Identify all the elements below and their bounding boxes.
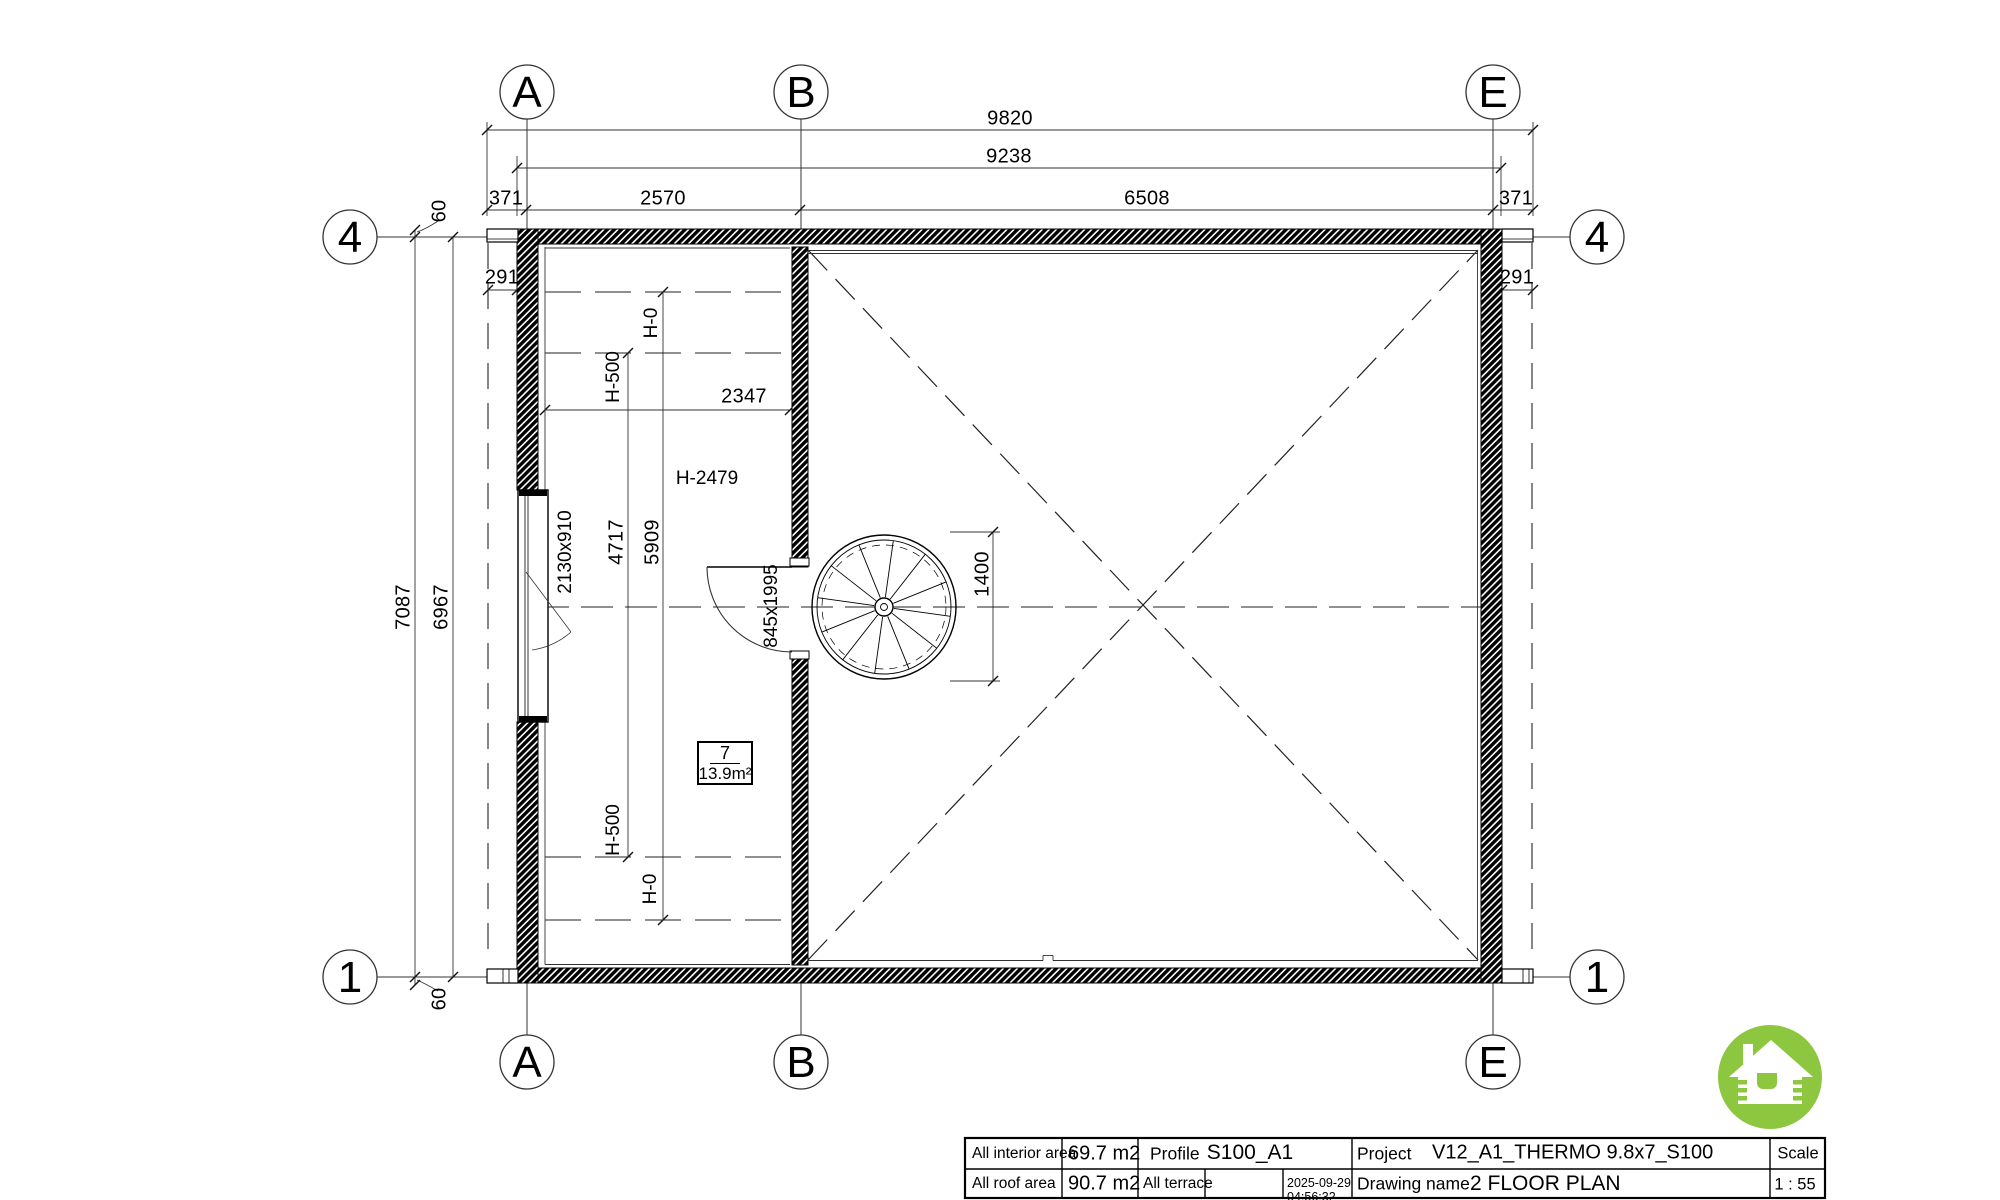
- time-line: 04:56:32: [1287, 1190, 1351, 1200]
- interior-area-label: All interior area: [972, 1145, 1076, 1163]
- label-h0-top: H-0: [641, 308, 663, 339]
- dim-9820: 9820: [987, 108, 1033, 131]
- dim-6967: 6967: [431, 584, 454, 630]
- drawing-name-label: Drawing name: [1357, 1174, 1470, 1195]
- grid-bubble-4-left: 4: [338, 213, 362, 263]
- void-cross-diagonals: [808, 250, 1478, 960]
- dim-291-right: 291: [1500, 267, 1534, 290]
- scale-value: 1 : 55: [1774, 1176, 1815, 1195]
- scale-label: Scale: [1777, 1145, 1818, 1164]
- grid-bubble-a-bottom: A: [512, 1038, 541, 1088]
- interior-wall-b: [792, 247, 808, 965]
- door-845x1995: [707, 558, 809, 659]
- room-tag: 7 13.9m²: [697, 741, 753, 785]
- interior-area-value: 69.7 m2: [1068, 1143, 1140, 1166]
- room-number: 7: [710, 744, 740, 764]
- roof-corner-ledges: [487, 229, 1533, 983]
- dim-7087: 7087: [393, 584, 416, 630]
- dim-2347: 2347: [721, 386, 767, 409]
- label-window-size: 2130x910: [555, 510, 577, 593]
- company-logo: [1718, 1025, 1822, 1129]
- grid-bubble-b-bottom: B: [786, 1038, 815, 1088]
- grid-bubble-1-right: 1: [1585, 953, 1609, 1003]
- grid-bubble-e-bottom: E: [1478, 1038, 1507, 1088]
- dim-6508: 6508: [1124, 188, 1170, 211]
- grid-bubble-b-top: B: [786, 68, 815, 118]
- grid-bubble-1-left: 1: [338, 953, 362, 1003]
- grid-bubble-e-top: E: [1478, 68, 1507, 118]
- terrace-label: All terrace: [1143, 1175, 1213, 1193]
- label-h500-bottom: H-500: [603, 804, 625, 856]
- dim-5909: 5909: [642, 519, 665, 565]
- profile-label: Profile: [1150, 1144, 1200, 1165]
- project-label: Project: [1357, 1144, 1411, 1165]
- wall-lining-lines: [545, 247, 1478, 965]
- label-ridge-height: H-2479: [676, 468, 738, 490]
- ledge-detail-lines: [487, 239, 1533, 983]
- dim-371-right: 371: [1499, 188, 1533, 211]
- profile-value: S100_A1: [1207, 1141, 1293, 1165]
- drawing-name-value: 2 FLOOR PLAN: [1470, 1172, 1621, 1196]
- label-h500-top: H-500: [603, 351, 625, 403]
- roof-area-value: 90.7 m2: [1068, 1173, 1140, 1196]
- datetime-stamp: 2025-09-29 04:56:32: [1287, 1176, 1351, 1200]
- grid-bubble-4-right: 4: [1585, 213, 1609, 263]
- floor-plan-page: A B E A B E 4 1 4 1 9820 9238 371 2570 6…: [0, 0, 2000, 1200]
- grid-bubble-a-top: A: [512, 68, 541, 118]
- floor-plan-linework: [0, 0, 2000, 1200]
- dim-9238: 9238: [986, 146, 1032, 169]
- date-line: 2025-09-29: [1287, 1176, 1351, 1190]
- exterior-walls: [517, 229, 1502, 983]
- dim-291-left: 291: [485, 267, 519, 290]
- dim-1400: 1400: [972, 551, 995, 597]
- label-door-size: 845x1995: [761, 564, 783, 647]
- roof-area-label: All roof area: [972, 1175, 1056, 1193]
- label-h0-bottom: H-0: [640, 874, 662, 905]
- dim-60-top: 60: [429, 200, 452, 223]
- project-value: V12_A1_THERMO 9.8x7_S100: [1432, 1142, 1713, 1165]
- dim-371-left: 371: [489, 188, 523, 211]
- dim-2570: 2570: [640, 188, 686, 211]
- dim-60-bottom: 60: [429, 988, 452, 1011]
- room-area: 13.9m²: [699, 764, 752, 783]
- dim-4717: 4717: [606, 519, 629, 565]
